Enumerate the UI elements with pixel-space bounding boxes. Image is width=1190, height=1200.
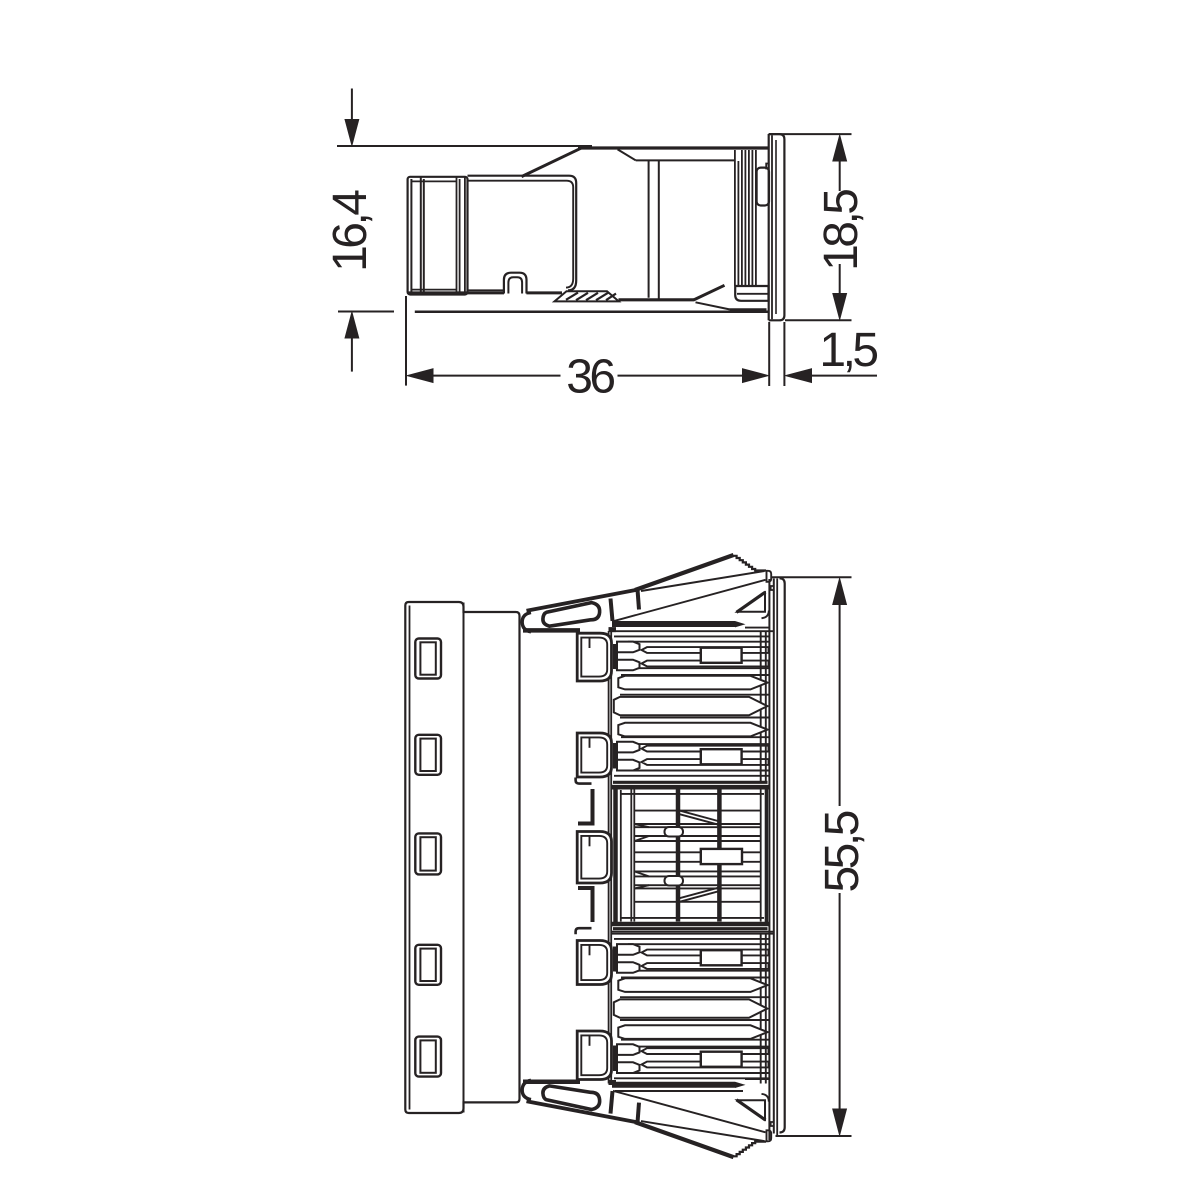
svg-text:16,4: 16,4 [324,190,377,272]
svg-text:18,5: 18,5 [815,190,868,271]
svg-text:36: 36 [566,350,614,403]
svg-text:1,5: 1,5 [819,324,877,377]
svg-text:55,5: 55,5 [816,811,869,892]
